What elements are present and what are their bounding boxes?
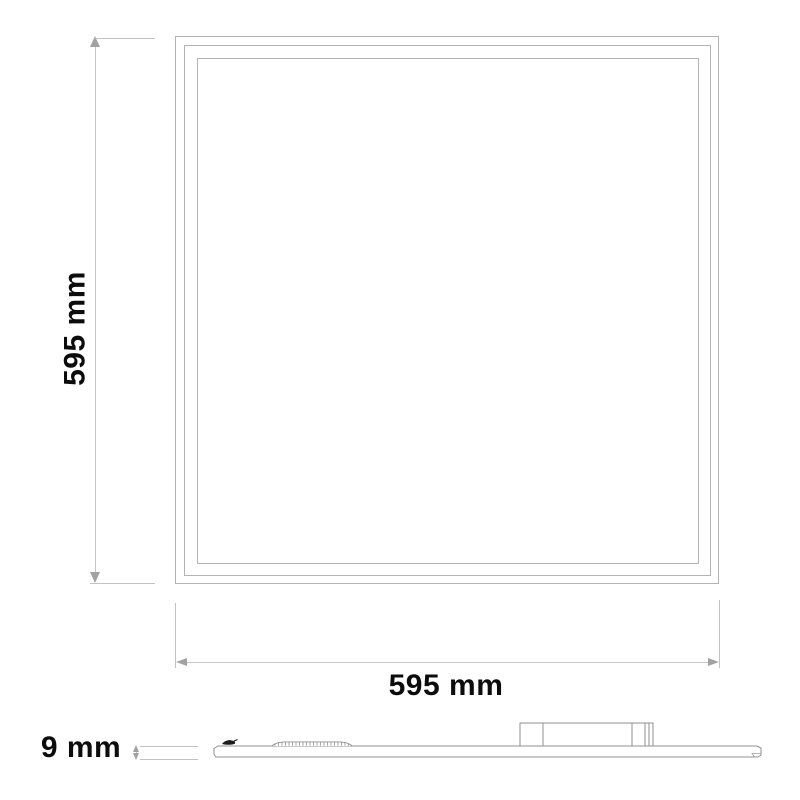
thickness-dimension-label: 9 mm xyxy=(20,731,142,764)
rib-mound-outline xyxy=(272,742,352,746)
clip-screw-detail xyxy=(222,740,235,745)
height-dimension-label: 595 mm xyxy=(59,246,92,412)
width-arrow-left-icon xyxy=(176,658,187,666)
diagram-canvas: 595 mm 595 mm 9 mm xyxy=(0,0,800,800)
width-extension-line-right xyxy=(719,600,720,668)
thickness-arrow-down-icon xyxy=(133,753,139,760)
thickness-extension-line-bottom xyxy=(140,759,198,760)
panel-diffuser-frame xyxy=(197,58,699,564)
thickness-arrow-up-icon xyxy=(133,745,139,752)
width-dimension-line xyxy=(184,662,711,663)
height-arrow-down-icon xyxy=(90,572,100,583)
thickness-extension-line-top xyxy=(140,746,198,747)
width-dimension-label: 595 mm xyxy=(346,669,546,702)
height-dimension-line xyxy=(95,44,96,576)
driver-box xyxy=(520,723,653,746)
height-extension-line-top xyxy=(95,38,155,39)
panel-side-view xyxy=(205,712,770,767)
height-extension-line-bottom xyxy=(90,583,155,584)
clip-screw-tip-detail xyxy=(234,740,238,742)
panel-slab-profile xyxy=(214,746,761,757)
width-arrow-right-icon xyxy=(708,658,719,666)
